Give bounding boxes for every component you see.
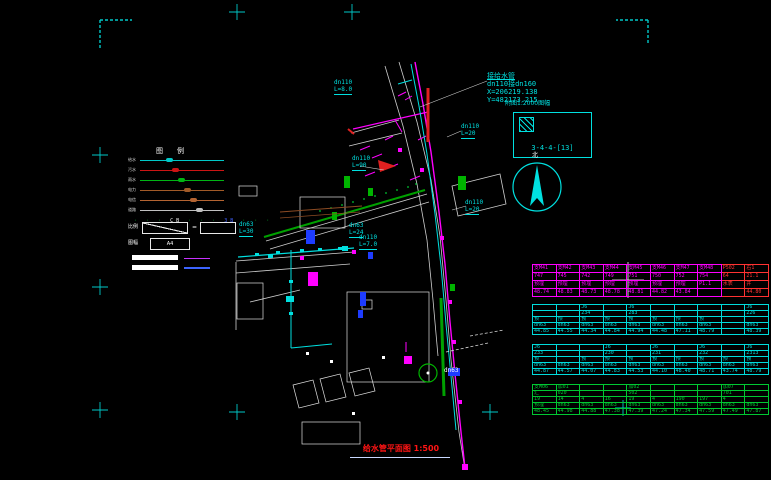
legend-row-line (140, 160, 224, 161)
legend-equals: = (192, 224, 197, 231)
table-cell: P502 (721, 265, 745, 273)
corner-bracket-marks (100, 20, 648, 48)
table-cell: 48.79 (745, 369, 769, 375)
north-label: 北 (532, 153, 538, 159)
legend-lines: 给水污水雨水电力电信道路 (128, 156, 224, 216)
legend-row-0: 给水 (128, 156, 224, 166)
annotation-pipe: dn110接dn160 (487, 80, 538, 88)
table-cell: 44.48 (650, 329, 674, 335)
sheet-title: 给水管平面图 1:500 (352, 444, 450, 454)
table-cell: 44.83 (603, 369, 627, 375)
table-row: 48.7448.8348.7348.7848.8144.8243.8444.80 (533, 289, 769, 297)
pipe-label-13: L=7.0 (359, 242, 377, 250)
table-row: 7477457427497517507527546421.1 (533, 273, 769, 281)
table-cell: 44.88 (580, 409, 604, 415)
table-cell: 44.57 (556, 369, 580, 375)
table-cell: 44.10 (650, 369, 674, 375)
legend-row-symbol (184, 188, 191, 192)
title-underline (350, 457, 450, 458)
legend-row-line (140, 200, 224, 201)
table-cell: 745 (556, 273, 580, 281)
legend-row-2: 雨水 (128, 176, 224, 186)
legend-sheet-label: 图幅 (128, 241, 138, 246)
pipe-label-1: L=8.0 (334, 87, 352, 95)
table-cell: 48.74 (533, 289, 557, 297)
key-plan-box: 3-4-4-[13] (513, 112, 592, 158)
table-cell: 47.49 (721, 409, 745, 415)
table-cell: 64 (721, 273, 745, 281)
table-cell: 48.83 (556, 289, 580, 297)
table-cell: 47.38 (603, 409, 627, 415)
table-cell: 支M42 (556, 265, 580, 273)
legend-row-1: 污水 (128, 166, 224, 176)
table-cell: 47.11 (674, 329, 698, 335)
legend-a4-box: A4 (150, 238, 190, 250)
legend-hatched-box (142, 222, 188, 234)
table-cell: 预埋 (603, 281, 627, 289)
legend-blue-line (184, 267, 210, 269)
pipe-label-3: L=90 (352, 163, 366, 171)
legend-row-symbol (166, 158, 173, 162)
table-cell: 支M48 (698, 265, 722, 273)
table-cell: 750 (650, 273, 674, 281)
legend-row-symbol (172, 168, 179, 172)
table-cell: 43.74 (721, 369, 745, 375)
legend-row-4: 电信 (128, 196, 224, 206)
legend-magenta-line (184, 258, 210, 259)
table-cell (698, 289, 722, 297)
legend-row-label: 道路 (128, 208, 136, 212)
legend-row-line (140, 170, 224, 171)
scale-bar-2 (132, 265, 178, 270)
pipe-label-7: L=20 (465, 207, 479, 215)
table-cell (721, 329, 745, 335)
table-cell: 47.34 (674, 409, 698, 415)
table-cell: 48.40 (674, 369, 698, 375)
table-cell: 44.55 (556, 329, 580, 335)
manhole-circle (419, 364, 437, 382)
table-cell: 水表 (721, 281, 745, 289)
legend-row-label: 电信 (128, 198, 136, 202)
legend-row-symbol (196, 208, 203, 212)
legend-row-5: 道路 (128, 206, 224, 216)
pipe-label-14: dn63 (444, 368, 458, 374)
table-cell: 44.94 (627, 329, 651, 335)
table-cell: 44.82 (650, 289, 674, 297)
building-outlines (237, 186, 429, 444)
table-cell: 43.84 (674, 289, 698, 297)
blue-structures (306, 230, 460, 376)
table-cell: P1.1 (698, 281, 722, 289)
table-cell: 支M45 (627, 265, 651, 273)
key-plan-hatch-icon (519, 117, 534, 132)
table-cell: 48.81 (627, 289, 651, 297)
scale-bar-1 (132, 255, 178, 260)
table-row: 44.8744.5744.0744.8344.5344.1048.4048.71… (533, 369, 769, 375)
table-cell: 支M43 (580, 265, 604, 273)
table-cell: 44.34 (580, 329, 604, 335)
elevation-table-group-2: J6J6J6J6J62332302312322313预预预预预预预预预dn63d… (532, 344, 769, 375)
table-cell: 48.45 (533, 409, 557, 415)
table-row: 预埋预埋预埋预埋预埋预埋预埋P1.1水表井 (533, 281, 769, 289)
connection-annotation: 接给水管 dn110接dn160 X=206219.138 Y=482173.2… (487, 72, 538, 104)
sheet-code: 3-4-4-[13] (514, 144, 591, 152)
legend-row-symbol (178, 178, 185, 182)
table-row: 支M41支M42支M43支M44支M45支M46支M47支M48P502右1 (533, 265, 769, 273)
table-cell: 48.71 (698, 369, 722, 375)
table-cell: 44.53 (627, 369, 651, 375)
table-cell: 21.1 (745, 273, 769, 281)
table-cell: 预埋 (674, 281, 698, 289)
table-cell: 48.78 (603, 289, 627, 297)
legend-row-label: 雨水 (128, 178, 136, 182)
pipe-label-9: L=30 (239, 229, 253, 237)
elevation-table-group-0: 支M41支M42支M43支M44支M45支M46支M47支M48P502右174… (532, 264, 769, 297)
table-cell: 预埋 (627, 281, 651, 289)
table-cell: 支M44 (603, 265, 627, 273)
table-cell: 预埋 (533, 281, 557, 289)
table-cell: 747 (533, 273, 557, 281)
table-cell: 749 (603, 273, 627, 281)
cad-sheet: 图例 给水污水雨水电力电信道路 · · · CB · · · 3B · · · … (0, 0, 771, 480)
table-cell: 44.85 (533, 329, 557, 335)
table-cell: 48.39 (745, 329, 769, 335)
table-cell: 预埋 (556, 281, 580, 289)
annotation-y-coord: Y=482173.215 (487, 96, 538, 104)
legend-row-label: 污水 (128, 168, 136, 172)
table-cell: 44.87 (533, 369, 557, 375)
table-cell: 47.24 (650, 409, 674, 415)
table-cell: 支M46 (650, 265, 674, 273)
legend-row-3: 电力 (128, 186, 224, 196)
elevation-table-group-3: 支M06加01加02加07汇02050270119144161941901974… (532, 384, 769, 415)
annotation-title: 接给水管 (487, 72, 538, 80)
table-cell: 44.98 (556, 409, 580, 415)
table-cell: 支M47 (674, 265, 698, 273)
table-cell: 751 (627, 273, 651, 281)
legend-row-label: 给水 (128, 158, 136, 162)
table-cell: 754 (698, 273, 722, 281)
table-row: 48.4544.9844.8847.3847.3947.2447.3447.59… (533, 409, 769, 415)
north-arrow (513, 163, 561, 211)
table-row: 44.8544.5544.3444.8444.9444.4847.1148.79… (533, 329, 769, 335)
legend-scale-label: 比例 (128, 225, 138, 230)
table-cell: 48.73 (580, 289, 604, 297)
table-cell: 预埋 (650, 281, 674, 289)
table-cell: 预埋 (580, 281, 604, 289)
elevation-table-group-1: J6J6J6234283226预预预预预预预预dn63dn63dn63dn63d… (532, 304, 769, 335)
annotation-x-coord: X=206219.138 (487, 88, 538, 96)
table-cell: 47.39 (627, 409, 651, 415)
table-cell: 742 (580, 273, 604, 281)
legend-row-label: 电力 (128, 188, 136, 192)
table-cell: 44.80 (745, 289, 769, 297)
pipe-label-5: L=20 (461, 131, 475, 139)
legend-row-line (140, 210, 224, 211)
legend-title: 图例 (156, 146, 198, 156)
table-cell: 47.59 (698, 409, 722, 415)
legend-row-line (140, 190, 224, 191)
table-cell: 752 (674, 273, 698, 281)
table-cell (721, 289, 745, 297)
legend-empty-box (200, 222, 236, 234)
table-cell: 47.87 (745, 409, 769, 415)
table-cell: 右1 (745, 265, 769, 273)
table-cell: 48.79 (698, 329, 722, 335)
table-cell: 44.84 (603, 329, 627, 335)
table-cell: 支M41 (533, 265, 557, 273)
legend-row-symbol (190, 198, 197, 202)
table-cell: 井 (745, 281, 769, 289)
water-main-magenta (353, 62, 465, 468)
table-cell: 44.07 (580, 369, 604, 375)
